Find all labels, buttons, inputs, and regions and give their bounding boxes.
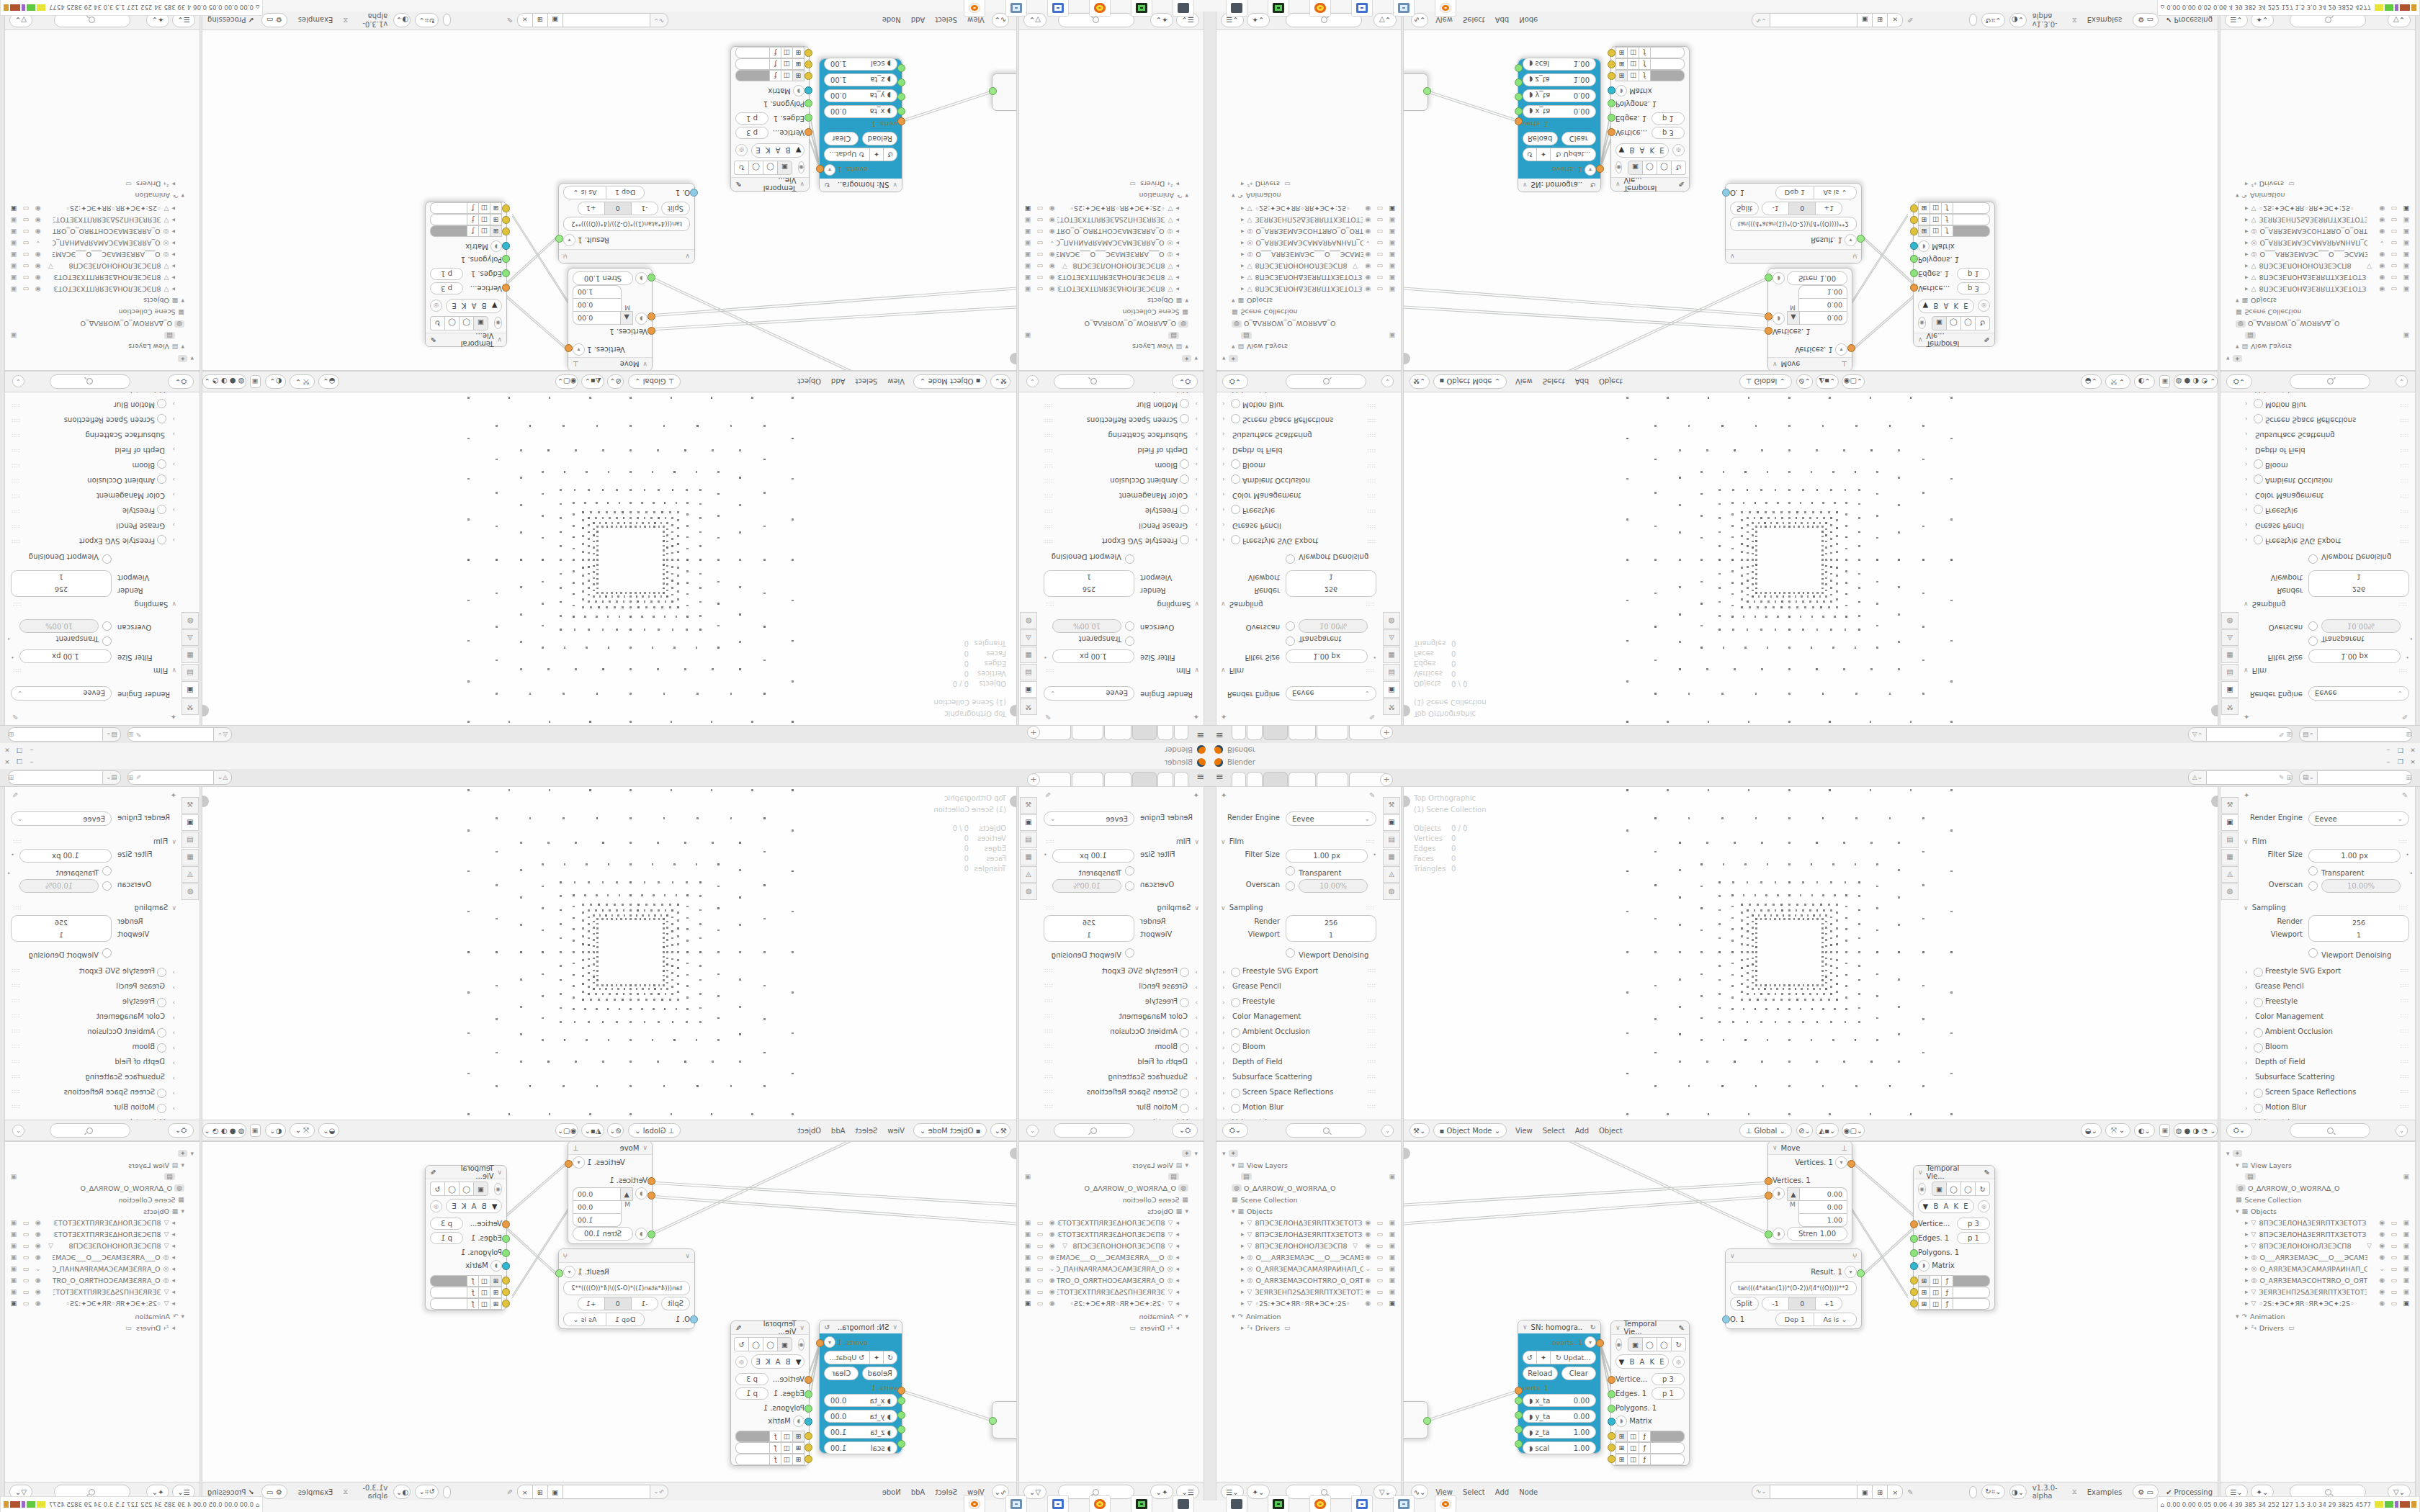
shading-mode-group[interactable]: ◍ ● ◑ ◔ ⌄ — [202, 374, 246, 389]
properties-tab-icon[interactable]: ◬ — [2221, 629, 2238, 646]
disable-viewports-icon[interactable]: ▭ — [23, 1230, 30, 1238]
zero-button[interactable]: 0 — [1789, 1297, 1816, 1310]
unlink-button[interactable]: × — [517, 13, 532, 27]
view-layers-row[interactable]: ▾▤View Layers — [2236, 1159, 2412, 1171]
scene-selector[interactable]: ◬⌄ ✎ ⊞ — [2188, 771, 2293, 784]
select-button[interactable]: ◎ — [430, 1200, 442, 1212]
hide-viewport-icon[interactable]: ◉ — [1049, 1300, 1055, 1307]
world-row[interactable]: ◍ O_ΔΛЯROW_O_WOЯRΛΔ_O — [2236, 1182, 2412, 1194]
material-button[interactable]: ⊞ — [792, 1442, 805, 1454]
world-row[interactable]: ◍ O_ΔΛЯROW_O_WOЯRΛΔ_O — [1022, 1182, 1188, 1194]
drivers-row[interactable]: ▸²₄Drivers ▭ — [8, 1322, 175, 1333]
result-dropdown[interactable]: ▾ — [1845, 235, 1857, 247]
output-dropdown[interactable]: ▾ — [1835, 1156, 1847, 1169]
disable-renders-icon[interactable]: ▣ — [1389, 1288, 1395, 1295]
disable-viewports-icon[interactable]: ▭ — [23, 1277, 30, 1284]
hide-viewport-icon[interactable]: ◉ — [1365, 1277, 1371, 1284]
sampling-section-header[interactable]: ∨ Sampling — [2244, 599, 2286, 613]
cube-toggle[interactable]: ▣ — [473, 316, 488, 330]
render-engine-dropdown[interactable]: Eevee⌄ — [11, 686, 112, 701]
image-viewer-taskbar-icon[interactable] — [1393, 0, 1415, 17]
disable-renders-icon[interactable]: ▣ — [2403, 240, 2409, 247]
select-button[interactable]: ◎ — [1672, 1356, 1685, 1368]
scene-collection-row[interactable]: ▦Scene Collection — [8, 1194, 184, 1205]
hide-viewport-icon[interactable]: ◉ — [1365, 1254, 1371, 1261]
vector-x-field[interactable]: 0.00 — [1800, 312, 1847, 325]
world-row[interactable]: ◍ O_ΔΛЯROW_O_WOЯRΛΔ_O — [2236, 318, 2412, 330]
properties-tab-icon[interactable]: ◍ — [181, 883, 199, 900]
object-row[interactable]: ▸◎O_АЯRЗЕМАЭСАМАЯРАИНАП_O_ ⌄ ▭ ▣ — [2245, 1263, 2412, 1274]
viewport-samples-field[interactable]: 1 — [2308, 570, 2409, 584]
menu-node[interactable]: Node — [1519, 17, 1538, 24]
hide-viewport-icon[interactable]: ◉ — [35, 1300, 41, 1307]
drivers-row[interactable]: ▸²₄Drivers ▭ — [2245, 179, 2412, 190]
disable-viewports-icon[interactable]: ▭ — [2390, 263, 2397, 270]
disable-renders-icon[interactable]: ▣ — [1025, 263, 1031, 270]
minimize-button[interactable]: – — [2383, 745, 2394, 755]
viewport-samples-field[interactable]: 1 — [1286, 570, 1376, 584]
vector-toggle-icon[interactable]: ◗ — [635, 312, 647, 325]
color-socket[interactable] — [805, 60, 812, 68]
pin-icon[interactable]: ✎ — [2279, 774, 2285, 781]
transparent-checkbox-row[interactable]: Transparent • — [1286, 865, 1390, 878]
properties-section-collapsed[interactable]: › Freestyle ∷∷ — [2239, 996, 2415, 1010]
hide-viewport-icon[interactable]: ◉ — [1049, 217, 1055, 224]
curve-map-button[interactable]: ƒ — [1942, 226, 1953, 238]
properties-tab-icon[interactable]: ◍ — [2221, 612, 2238, 629]
value-socket[interactable] — [897, 1440, 905, 1448]
disable-viewports-icon[interactable]: ▭ — [2390, 1265, 2397, 1272]
color-socket[interactable] — [1910, 216, 1918, 224]
viewport-3d[interactable]: Top Orthographic (1) Scene Collection Ob… — [202, 786, 1017, 1121]
menu-view[interactable]: View — [1435, 17, 1453, 24]
sn-value-field[interactable]: ◗ x_ta0.00 — [1523, 1394, 1596, 1407]
node-editor[interactable]: ∨⑂ Result. 1 ▾ tan(((4*atan(1))*(O-2))/(… — [1403, 1141, 2218, 1483]
viewport-3d[interactable]: Top Orthographic (1) Scene Collection Ob… — [1403, 786, 2218, 1121]
object-row[interactable]: ▸◎O_АЯRЗЕМАЭСОНТЯRO_O_ОЯТНС ◉ ▭ ▣ — [1241, 226, 1398, 238]
temporal-viewer-node[interactable]: ∨Temporal Vie...✎ ◉ ▣ ◯ ◯ ↻ ▼ B A K E ◎ … — [1610, 1320, 1690, 1466]
properties-section-collapsed[interactable]: › Subsurface Scattering ∷∷ — [5, 1071, 181, 1086]
zero-button[interactable]: 0 — [604, 202, 631, 216]
vertices-socket[interactable] — [1910, 284, 1918, 292]
move-node[interactable]: ∨Move⊥ Vertices. 1 ▾ Vertices. 1 ◗ ▲ 0.0… — [568, 268, 653, 371]
options-button[interactable]: ⌄ — [1026, 376, 1039, 388]
properties-tab-icon[interactable]: ▦ — [2221, 647, 2238, 663]
edit-icon[interactable]: ✎ — [1984, 1169, 1990, 1176]
vertex-toggle[interactable]: ◯ — [763, 1337, 777, 1351]
outliner-root-row[interactable]: ▾✦ — [2226, 1148, 2412, 1159]
hide-viewport-icon[interactable]: ◉ — [2379, 1242, 2385, 1249]
drivers-row[interactable]: ▸²₄Drivers ▭ — [1022, 179, 1179, 190]
sverchok-button[interactable]: ✦ — [1537, 148, 1551, 162]
viewport-denoising-row[interactable]: Viewport Denoising — [1286, 552, 1368, 565]
edit-icon[interactable]: ✎ — [430, 1169, 436, 1176]
filter-size-field[interactable]: 1.00 px — [19, 649, 112, 663]
color-field[interactable] — [1651, 1431, 1685, 1442]
disable-renders-icon[interactable]: ▣ — [1389, 274, 1395, 282]
add-workspace-button[interactable]: + — [1380, 773, 1393, 786]
drivers-row[interactable]: ▸²₄Drivers ▭ — [1022, 1322, 1179, 1333]
object-row[interactable]: ▸▽8ПЭСЗЕЛОНОНОЛЗЕЭСП8▽ ◉ ▭ ▣ — [1241, 1240, 1398, 1251]
firefox-taskbar-icon[interactable] — [1089, 0, 1111, 17]
matrix-toggle-icon[interactable]: ◗ — [490, 241, 502, 253]
disable-renders-icon[interactable]: ▣ — [1389, 1265, 1395, 1272]
color-socket[interactable] — [1910, 204, 1918, 212]
hide-viewport-icon[interactable]: ◉ — [35, 217, 41, 224]
film-section-header[interactable]: ∨ Film — [153, 665, 176, 679]
material-button[interactable]: ⊞ — [490, 226, 502, 238]
object-row[interactable]: ▸◎O_АЯRЗЕМАЭСАМАЯРАИНАП_O_ ⌄ ▭ ▣ — [1022, 238, 1179, 249]
render-preview-button[interactable]: ▣ — [2159, 375, 2171, 388]
menu-select[interactable]: Select — [1463, 17, 1485, 24]
edge-toggle[interactable]: ◯ — [444, 316, 459, 330]
palette-button[interactable]: ◫ — [781, 1442, 792, 1454]
vector-x-field[interactable]: 0.00 — [1800, 1187, 1847, 1201]
package-taskbar-icon[interactable] — [1131, 0, 1152, 17]
view-layer-chip-row[interactable]: ▤▣ — [1241, 1171, 1398, 1182]
color-field[interactable] — [430, 1275, 467, 1287]
formula-field[interactable]: tan(((4*atan(1))*(O-2))/(4*((O))))**2 — [1730, 1281, 1857, 1295]
curve-map-button[interactable]: ƒ — [1942, 203, 1953, 215]
bake-button[interactable]: ▼ B A K E — [1615, 1354, 1669, 1369]
objects-row[interactable]: ▾▦Objects — [2236, 1205, 2412, 1217]
outliner-root-row[interactable]: ▾✦ — [8, 353, 194, 364]
properties-tab-icon[interactable]: ▤ — [2221, 664, 2238, 680]
hide-viewport-icon[interactable]: ◉ — [35, 1288, 41, 1295]
blender-taskbar-icon[interactable] — [964, 1495, 985, 1512]
menu-add[interactable]: Add — [1495, 1488, 1509, 1496]
vertices-socket[interactable] — [1608, 1376, 1615, 1384]
properties-tab-icon[interactable]: ⚒ — [2221, 797, 2238, 814]
workspace-tab[interactable] — [1289, 725, 1316, 740]
objects-row[interactable]: ▾▦Objects — [1022, 295, 1188, 307]
curve-map-button[interactable]: ƒ — [1639, 59, 1651, 71]
sn-value-field[interactable]: ◗ y_ta0.00 — [824, 1410, 897, 1423]
palette-button[interactable]: ◫ — [1628, 48, 1639, 59]
temporal-viewer-node[interactable]: ∨Temporal Vie...✎ ◉ ▣ ◯ ◯ ↻ ▼ B A K E ◎ … — [730, 1320, 810, 1466]
disable-renders-icon[interactable]: ▣ — [2403, 1277, 2409, 1284]
material-button[interactable]: ⊞ — [490, 1298, 502, 1310]
object-row[interactable]: ▸▽8ПЭСЗЕЛОНΔЗЕЯRПТХЗЕТОТЗЕХ ◉ ▭ ▣ — [8, 1228, 175, 1240]
formula-node[interactable]: ∨⑂ Result. 1 ▾ tan(((4*atan(1))*(O-2))/(… — [558, 1248, 695, 1329]
outliner-type-button[interactable]: ✦⌄ — [1150, 1485, 1173, 1499]
app-menu-icon[interactable]: ≡ — [1196, 771, 1204, 782]
polygons-socket[interactable] — [1608, 99, 1615, 107]
menu-add[interactable]: Add — [1575, 378, 1589, 386]
result-socket[interactable] — [555, 1269, 563, 1277]
wrap-dropdown[interactable]: As is ⌄ — [563, 186, 606, 200]
material-button[interactable]: ⊞ — [1918, 215, 1930, 226]
vertices-value[interactable]: p 3 — [1652, 127, 1685, 139]
value-socket[interactable] — [1515, 1411, 1523, 1419]
view-layers-row[interactable]: ▾▤View Layers — [1022, 341, 1188, 353]
hide-viewport-icon[interactable]: ◉ — [2379, 228, 2385, 235]
curve-toggle[interactable]: ↻ — [734, 1337, 748, 1351]
hide-viewport-icon[interactable]: ◉ — [1049, 1242, 1055, 1249]
unlink-button[interactable]: × — [1888, 13, 1903, 27]
object-row[interactable]: ▸▽◦2S:✦ЭС✦ЯR◦ЯR✦ЭС✦:2S◦ ◉ ▭ ▣ — [8, 1297, 175, 1309]
vertices-value[interactable]: p 3 — [1957, 282, 1990, 294]
render-preview-button[interactable]: ▣ — [250, 375, 261, 388]
object-row[interactable]: ▸◎O___АЯRЗЕМАЭС___O___ЭСАМЗЕ ◉ ▭ ▣ — [2245, 1251, 2412, 1263]
disable-renders-icon[interactable]: ▣ — [1389, 251, 1395, 258]
curve-toggle[interactable]: ↻ — [430, 1182, 444, 1196]
properties-section-collapsed[interactable]: › Bloom ∷∷ — [1216, 1041, 1382, 1056]
palette-button[interactable]: ◫ — [1628, 59, 1639, 71]
vertices-output-socket[interactable] — [565, 1160, 573, 1168]
object-row[interactable]: ▸▽◦2S:✦ЭС✦ЯR◦ЯR✦ЭС✦:2S◦ ◉ ▭ ▣ — [1241, 1297, 1398, 1309]
color-socket[interactable] — [1910, 1288, 1918, 1296]
sn-value-field[interactable]: ◗ scal1.00 — [824, 58, 897, 71]
properties-section-collapsed[interactable]: › Color Management ∷∷ — [2239, 487, 2415, 501]
menu-object[interactable]: Object — [797, 378, 821, 386]
material-button[interactable]: ⊞ — [490, 215, 502, 226]
edge-toggle[interactable]: ◯ — [748, 161, 763, 175]
menu-view[interactable]: View — [1515, 378, 1533, 386]
select-button[interactable]: ◎ — [1978, 300, 1990, 312]
disable-viewports-icon[interactable]: ▭ — [1376, 1277, 1383, 1284]
unlink-button[interactable]: × — [517, 1485, 532, 1499]
properties-section-collapsed[interactable]: › Screen Space Reflections ∷∷ — [1038, 411, 1204, 426]
disable-renders-icon[interactable]: ▣ — [1389, 263, 1395, 270]
temporal-viewer-node[interactable]: ∨Temporal Vie...✎ ◉ ▣ ◯ ◯ ↻ ▼ B A K E ◎ … — [1913, 202, 1995, 347]
material-button[interactable]: ⊞ — [792, 59, 805, 71]
color-field[interactable] — [1953, 203, 1990, 215]
disable-viewports-icon[interactable]: ▭ — [1376, 263, 1383, 270]
scene-selector[interactable]: ◬⌄ ✎ ⊞ — [127, 771, 232, 784]
minus-one-button[interactable]: -1 — [631, 202, 658, 216]
overts-output-socket[interactable] — [816, 1339, 824, 1347]
object-row[interactable]: ▸▽8ПЭСЗЕЛОНОНОЛЗЕЭСП8▽ ◉ ▭ ▣ — [8, 1240, 175, 1251]
menu-select[interactable]: Select — [855, 378, 877, 386]
disable-viewports-icon[interactable]: ▭ — [23, 1265, 30, 1272]
curve-map-button[interactable]: ƒ — [1942, 1298, 1953, 1310]
hide-viewport-icon[interactable]: ◉ — [1365, 228, 1371, 235]
view-layers-row[interactable]: ▾▤View Layers — [1232, 341, 1398, 353]
palette-button[interactable]: ◫ — [478, 203, 490, 215]
object-row[interactable]: ▸▽8ПЭСЗЕЛОНΔЗЕЯRПТХЗЕТОТЗЕХІ ◉ ▭ ▣ — [2245, 284, 2412, 295]
curve-map-button[interactable]: ƒ — [467, 215, 478, 226]
value-socket[interactable] — [897, 93, 905, 101]
disable-renders-icon[interactable]: ▣ — [1389, 286, 1395, 293]
palette-button[interactable]: ◫ — [1628, 1442, 1639, 1454]
sampling-section-header[interactable]: ∨ Sampling — [1221, 599, 1263, 613]
menu-view[interactable]: View — [967, 1488, 985, 1496]
properties-section-collapsed[interactable]: › Freestyle ∷∷ — [1216, 502, 1382, 516]
strength-input-socket[interactable] — [1765, 274, 1773, 282]
color-socket[interactable] — [1608, 72, 1615, 80]
disable-viewports-icon[interactable]: ▭ — [23, 251, 30, 258]
color-socket[interactable] — [805, 1444, 812, 1452]
update-button[interactable]: ↻ Updat... — [824, 148, 869, 162]
vertex-toggle[interactable]: ◯ — [1947, 1182, 1961, 1196]
sn-value-field[interactable]: ◗ y_ta0.00 — [1523, 89, 1596, 102]
disable-viewports-icon[interactable]: ▭ — [23, 1288, 30, 1295]
shading-mode-group[interactable]: ◍ ● ◑ ◔ ⌄ — [2174, 1123, 2218, 1138]
overlays-dropdown[interactable]: ⤧ ⌄ — [2105, 1123, 2130, 1138]
collapse-icon[interactable]: ∨ — [1773, 1144, 1778, 1151]
disable-viewports-icon[interactable]: ▭ — [1037, 1265, 1044, 1272]
curve-map-button[interactable]: ƒ — [467, 1298, 478, 1310]
editor-type-button[interactable]: ⛭⌄ — [1172, 1123, 1198, 1138]
hide-viewport-icon[interactable]: ◉ — [2379, 217, 2385, 224]
strength-input-socket[interactable] — [1765, 1230, 1773, 1238]
output-socket[interactable] — [1423, 1417, 1431, 1425]
matrix-toggle-icon[interactable]: ◗ — [793, 1416, 805, 1427]
properties-tab-icon[interactable]: ⚒ — [2221, 698, 2238, 715]
transparent-checkbox-row[interactable]: Transparent • — [1030, 865, 1134, 878]
properties-section-collapsed[interactable]: › Grease Pencil ∷∷ — [2239, 517, 2415, 531]
disable-viewports-icon[interactable]: ▭ — [23, 1219, 30, 1226]
properties-section-collapsed[interactable]: › Freestyle SVG Export ∷∷ — [2239, 532, 2415, 546]
result-dropdown[interactable]: ▾ — [563, 1266, 575, 1278]
workspace-tab[interactable] — [1317, 772, 1348, 787]
properties-section-collapsed[interactable]: › Grease Pencil ∷∷ — [1038, 981, 1204, 995]
editor-type-button[interactable]: ⚒⌄ — [991, 1123, 1011, 1138]
editor-type-button[interactable]: ⚒⌄ — [1410, 1123, 1430, 1138]
properties-section-collapsed[interactable]: › Motion Blur ∷∷ — [2239, 1102, 2415, 1116]
editor-type-button[interactable]: ⛭⌄ — [1172, 374, 1198, 389]
object-row[interactable]: ▸◎O___АЯRЗЕМАЭС___O___ЭСАМЗЕ ◉ ▭ ▣ — [1022, 1251, 1179, 1263]
select-button[interactable]: ◎ — [735, 145, 748, 157]
editor-type-button[interactable]: ⛭⌄ — [2226, 374, 2252, 389]
disable-viewports-icon[interactable]: ▭ — [1037, 1219, 1044, 1226]
copy-button[interactable]: ⊞ — [532, 1485, 547, 1499]
tree-browse-button[interactable]: ∿⌄ — [650, 1485, 668, 1499]
object-row[interactable]: ▸▽8ПЭСЗЕЛОНΔЗЕЯRПТХЗЕТОТЗЕХ ◉ ▭ ▣ — [2245, 272, 2412, 284]
material-button[interactable]: ⊞ — [1615, 1454, 1628, 1465]
color-socket[interactable] — [1608, 60, 1615, 68]
properties-tab-icon[interactable]: ◍ — [181, 612, 199, 629]
disable-renders-icon[interactable]: ▣ — [1389, 1300, 1395, 1307]
color-socket[interactable] — [502, 1277, 510, 1284]
workspace-tab[interactable] — [1174, 725, 1188, 740]
disable-viewports-icon[interactable]: ▭ — [1376, 1254, 1383, 1261]
vector-y-field[interactable]: 0.00 — [1798, 1201, 1847, 1214]
menu-node[interactable]: Node — [882, 17, 901, 24]
disable-viewports-icon[interactable]: ▭ — [1376, 240, 1383, 247]
object-row[interactable]: ▸▽8ПЭСЗЕЛОНΔЗЕЯRПТХЗЕТОТЗЕХІ ◉ ▭ ▣ — [8, 284, 175, 295]
disable-viewports-icon[interactable]: ▭ — [1037, 251, 1044, 258]
object-row[interactable]: ▸▽8ПЭСЗЕЛОНОНОЛЗЕЭСП8▽ ◉ ▭ ▣ — [2245, 261, 2412, 272]
disable-renders-icon[interactable]: ▣ — [1389, 217, 1395, 224]
sn-script-node[interactable]: ∨SN: homogra..↻ overts. 1 ▾ ↺ ✦ ↻ Updat.… — [819, 58, 902, 192]
copy-icon[interactable]: ⊞ — [9, 731, 14, 738]
collapse-icon[interactable]: ∨ — [642, 1144, 647, 1151]
disable-renders-icon[interactable]: ▣ — [11, 228, 17, 235]
menu-add[interactable]: Add — [911, 1488, 925, 1496]
overts-output-socket[interactable] — [1596, 1339, 1604, 1347]
properties-tab-icon[interactable]: ▣ — [1383, 814, 1400, 831]
hide-viewport-icon[interactable]: ◉ — [1365, 217, 1371, 224]
properties-tab-icon[interactable]: ▦ — [1020, 647, 1037, 663]
edge-toggle[interactable]: ◯ — [1657, 1337, 1672, 1351]
palette-button[interactable]: ◫ — [781, 71, 792, 82]
toolbar-collapse-handle[interactable] — [1010, 705, 1016, 716]
object-row[interactable]: ▸▽ЗЕЯRЗЕНП2SΔЗЕЯRПТХЗЕТОТЗЕ) ◉ ▭ ▣ — [2245, 215, 2412, 226]
properties-tab-icon[interactable]: ⚒ — [1383, 698, 1400, 715]
scene-collection-row[interactable]: ▦Scene Collection — [1232, 307, 1398, 318]
minus-one-button[interactable]: -1 — [1762, 202, 1789, 216]
formula-field[interactable]: tan(((4*atan(1))*(O-2))/(4*((O))))**2 — [1730, 217, 1857, 231]
hide-viewport-icon[interactable]: ◉ — [35, 1242, 41, 1249]
edit-icon[interactable]: ✎ — [735, 1324, 741, 1332]
viewlayer-selector[interactable]: ▤⌄ ⊞ — [2299, 728, 2412, 741]
sn-script-node[interactable]: ∨SN: homogra..↻ overts. 1 ▾ ↺ ✦ ↻ Updat.… — [819, 1320, 902, 1454]
object-row[interactable]: ▸▽ЗЕЯRЗЕНП2SΔЗЕЯRПТХЗЕТОТЗЕ) ◉ ▭ ▣ — [1241, 215, 1398, 226]
options-button[interactable]: ⌄ — [1381, 1125, 1394, 1137]
search-field[interactable] — [2290, 374, 2370, 389]
workspace-tab[interactable] — [1157, 772, 1173, 787]
disable-viewports-icon[interactable]: ▭ — [1037, 240, 1044, 247]
blender-taskbar-icon[interactable] — [1435, 1495, 1456, 1512]
verts-input-socket[interactable] — [1515, 1387, 1523, 1395]
temporal-viewer-node[interactable]: ∨Temporal Vie...✎ ◉ ▣ ◯ ◯ ↻ ▼ B A K E ◎ … — [425, 202, 507, 347]
properties-section-collapsed[interactable]: › Ambient Occlusion ∷∷ — [1038, 472, 1204, 486]
menu-node[interactable]: Node — [1519, 1488, 1538, 1496]
color-socket[interactable] — [502, 1300, 510, 1308]
sn-value-field[interactable]: ◗ z_ta1.00 — [824, 1426, 897, 1439]
object-row[interactable]: ▸◎O_АЯRЗЕМАЭСОНТЯRO_O_ОЯТНС ◉ ▭ ▣ — [1241, 1274, 1398, 1286]
pin-icon[interactable]: ✎ — [506, 17, 512, 24]
filter-size-field[interactable]: 1.00 px — [1286, 649, 1368, 663]
render-samples-field[interactable]: 256 — [1044, 582, 1134, 597]
properties-tab-icon[interactable]: ▤ — [181, 832, 199, 848]
properties-section-collapsed[interactable]: › Screen Space Reflections ∷∷ — [1038, 1086, 1204, 1101]
render-engine-dropdown[interactable]: Eevee⌄ — [1044, 686, 1134, 701]
viewlayer-selector[interactable]: ▤⌄ ⊞ — [8, 728, 121, 741]
result-socket[interactable] — [1857, 235, 1865, 243]
material-button[interactable]: ⊞ — [1615, 1442, 1628, 1454]
material-button[interactable]: ⊞ — [490, 203, 502, 215]
render-preview-button[interactable]: ▣ — [250, 1124, 261, 1137]
hide-viewport-icon[interactable]: ⌄ — [35, 1265, 41, 1272]
edges-value[interactable]: p 1 — [1652, 1387, 1685, 1400]
properties-section-collapsed[interactable]: › Bloom ∷∷ — [1038, 456, 1204, 471]
disable-renders-icon[interactable]: ▣ — [1025, 1288, 1031, 1295]
filter-size-field[interactable]: 1.00 px — [1052, 649, 1134, 663]
object-row[interactable]: ▸▽8ПЭСЗЕЛОНΔЗЕЯRПТХЗЕТОТЗЕХ ◉ ▭ ▣ — [1241, 272, 1398, 284]
plus-one-button[interactable]: +1 — [1816, 1297, 1842, 1310]
mode-dropdown[interactable]: ▪ Object Mode ⌄ — [913, 1123, 987, 1138]
edges-socket[interactable] — [1910, 1235, 1918, 1243]
disable-viewports-icon[interactable]: ▭ — [2390, 1219, 2397, 1226]
menu-add[interactable]: Add — [831, 378, 845, 386]
editor-type-button[interactable]: ⚒⌄ — [1410, 374, 1430, 389]
animation-row[interactable]: ▾↷Animation — [2236, 190, 2412, 202]
hide-viewport-icon[interactable]: ◉ — [2379, 1230, 2385, 1238]
hide-viewport-icon[interactable]: ◉ — [35, 1254, 41, 1261]
vertices-socket[interactable] — [1608, 128, 1615, 136]
hide-viewport-icon[interactable]: ◉ — [35, 1277, 41, 1284]
unlink-button[interactable]: × — [1888, 1485, 1903, 1499]
object-row[interactable]: ▸▽8ПЭСЗЕЛОНΔЗЕЯRПТХЗЕТОТЗЕХІ ◉ ▭ ▣ — [2245, 1217, 2412, 1228]
workspace-tab[interactable] — [1247, 772, 1263, 787]
properties-section-collapsed[interactable]: › Color Management ∷∷ — [1038, 1011, 1204, 1025]
overlays-dropdown[interactable]: ⤧ ⌄ — [290, 1123, 315, 1138]
shading-mode-group[interactable]: ◍ ● ◑ ◔ ⌄ — [2174, 374, 2218, 389]
select-button[interactable]: ◎ — [430, 300, 442, 312]
value-socket[interactable] — [897, 64, 905, 72]
show-gizmo-dropdown[interactable]: ◒⌄ — [318, 374, 339, 389]
outliner-root-row[interactable]: ▾✦ — [1222, 1148, 1398, 1159]
refresh-icon[interactable]: ↻ — [1590, 1323, 1596, 1331]
gizmo-pill[interactable]: ↻⌗⌄ — [416, 13, 439, 27]
pin-toggle-icon[interactable]: ✎ — [12, 713, 18, 721]
properties-section-collapsed[interactable]: › Bloom ∷∷ — [2239, 456, 2415, 471]
overts-output-socket[interactable] — [1596, 165, 1604, 173]
render-engine-dropdown[interactable]: Eevee⌄ — [1286, 686, 1376, 701]
